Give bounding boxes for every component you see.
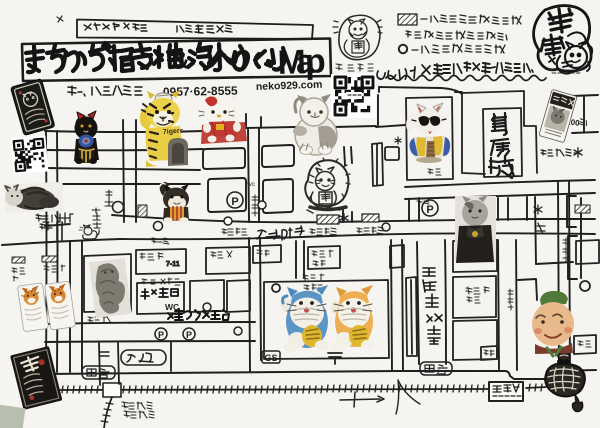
svg-text:0957·62-8555: 0957·62-8555 <box>163 84 238 99</box>
svg-text:P: P <box>231 196 238 208</box>
svg-text:P: P <box>186 330 192 340</box>
svg-text:&: & <box>171 46 190 75</box>
svg-text:neko929.com: neko929.com <box>256 79 323 93</box>
svg-text:P: P <box>158 330 164 340</box>
svg-text:wc: wc <box>246 181 256 188</box>
svg-text:7-11: 7-11 <box>166 261 180 268</box>
svg-text:Map: Map <box>277 42 326 82</box>
svg-text:7igers: 7igers <box>163 128 184 136</box>
svg-text:GS: GS <box>264 353 277 363</box>
svg-text:P: P <box>426 204 433 216</box>
